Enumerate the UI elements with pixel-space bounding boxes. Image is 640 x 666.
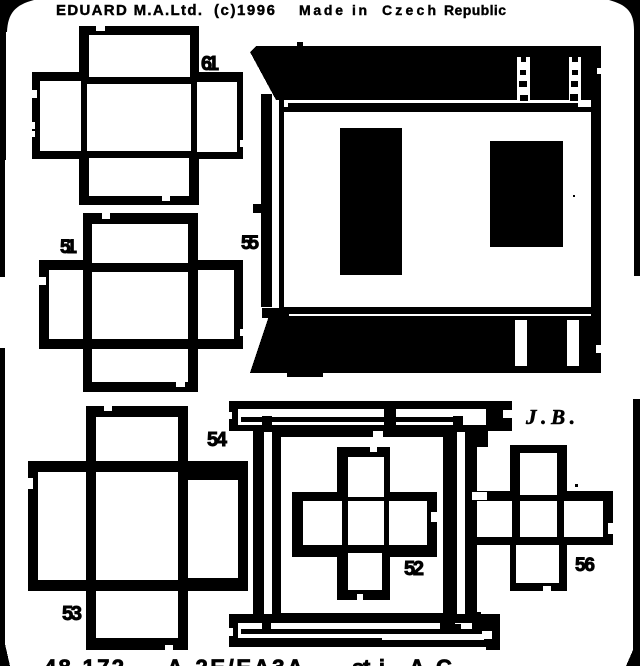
svg-text:56: 56: [575, 555, 595, 576]
svg-text:C: C: [436, 655, 452, 666]
svg-text:51: 51: [60, 237, 77, 258]
svg-text:Made: Made: [299, 2, 343, 18]
svg-text:48-172: 48-172: [44, 655, 124, 666]
svg-text:A: A: [409, 655, 425, 666]
svg-text:in: in: [352, 2, 367, 18]
svg-text:61: 61: [201, 53, 219, 75]
svg-text:53: 53: [62, 603, 82, 625]
svg-text:Czech: Czech: [382, 2, 436, 18]
svg-text:st. i: st. i: [352, 655, 385, 666]
svg-text:54: 54: [207, 429, 228, 451]
svg-text:Republic: Republic: [444, 2, 506, 18]
svg-text:55: 55: [241, 233, 259, 254]
svg-text:(c)1996: (c)1996: [214, 2, 275, 19]
svg-text:52: 52: [404, 558, 424, 580]
svg-text:EDUARD M.A.Ltd.: EDUARD M.A.Ltd.: [56, 2, 202, 19]
